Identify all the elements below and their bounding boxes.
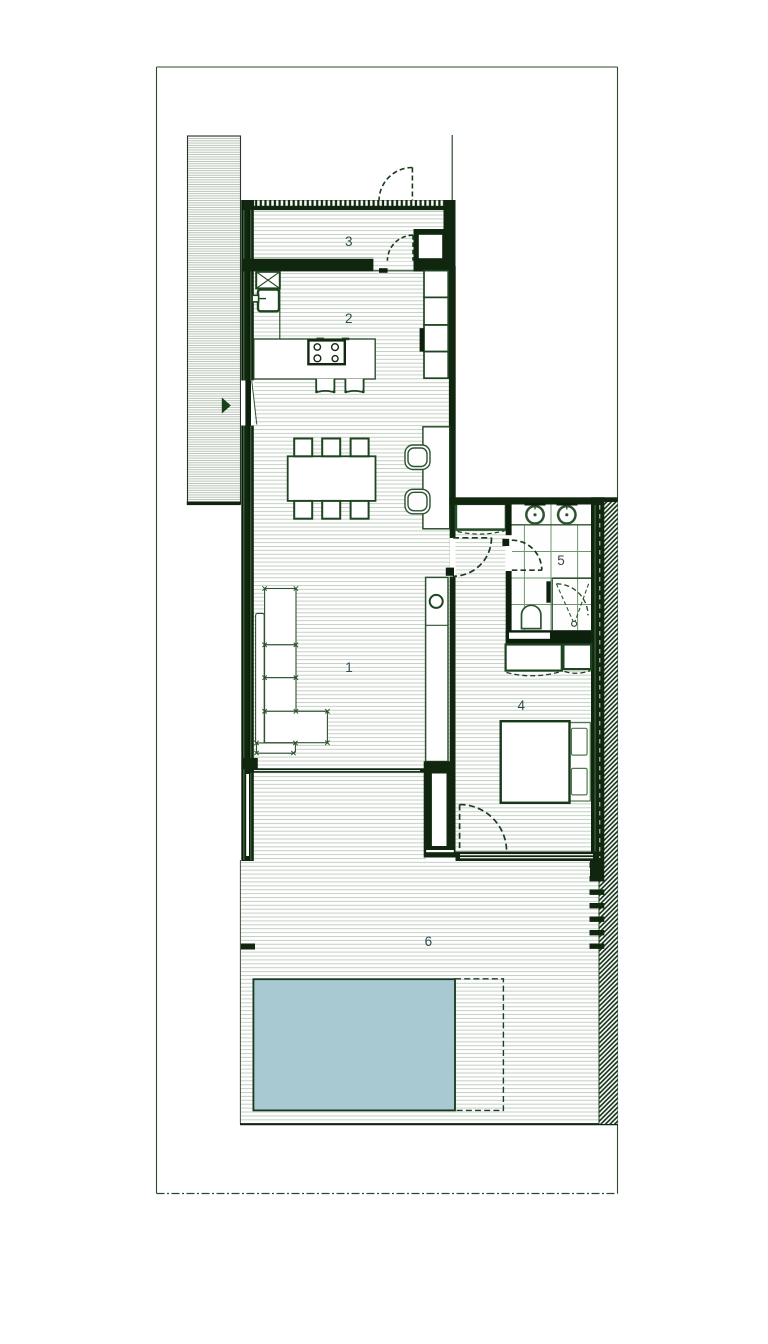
svg-text:4: 4 (518, 698, 526, 713)
svg-text:5: 5 (557, 553, 565, 568)
svg-text:6: 6 (425, 934, 433, 949)
svg-text:2: 2 (345, 311, 353, 326)
svg-text:1: 1 (345, 660, 353, 675)
svg-text:3: 3 (345, 234, 353, 249)
